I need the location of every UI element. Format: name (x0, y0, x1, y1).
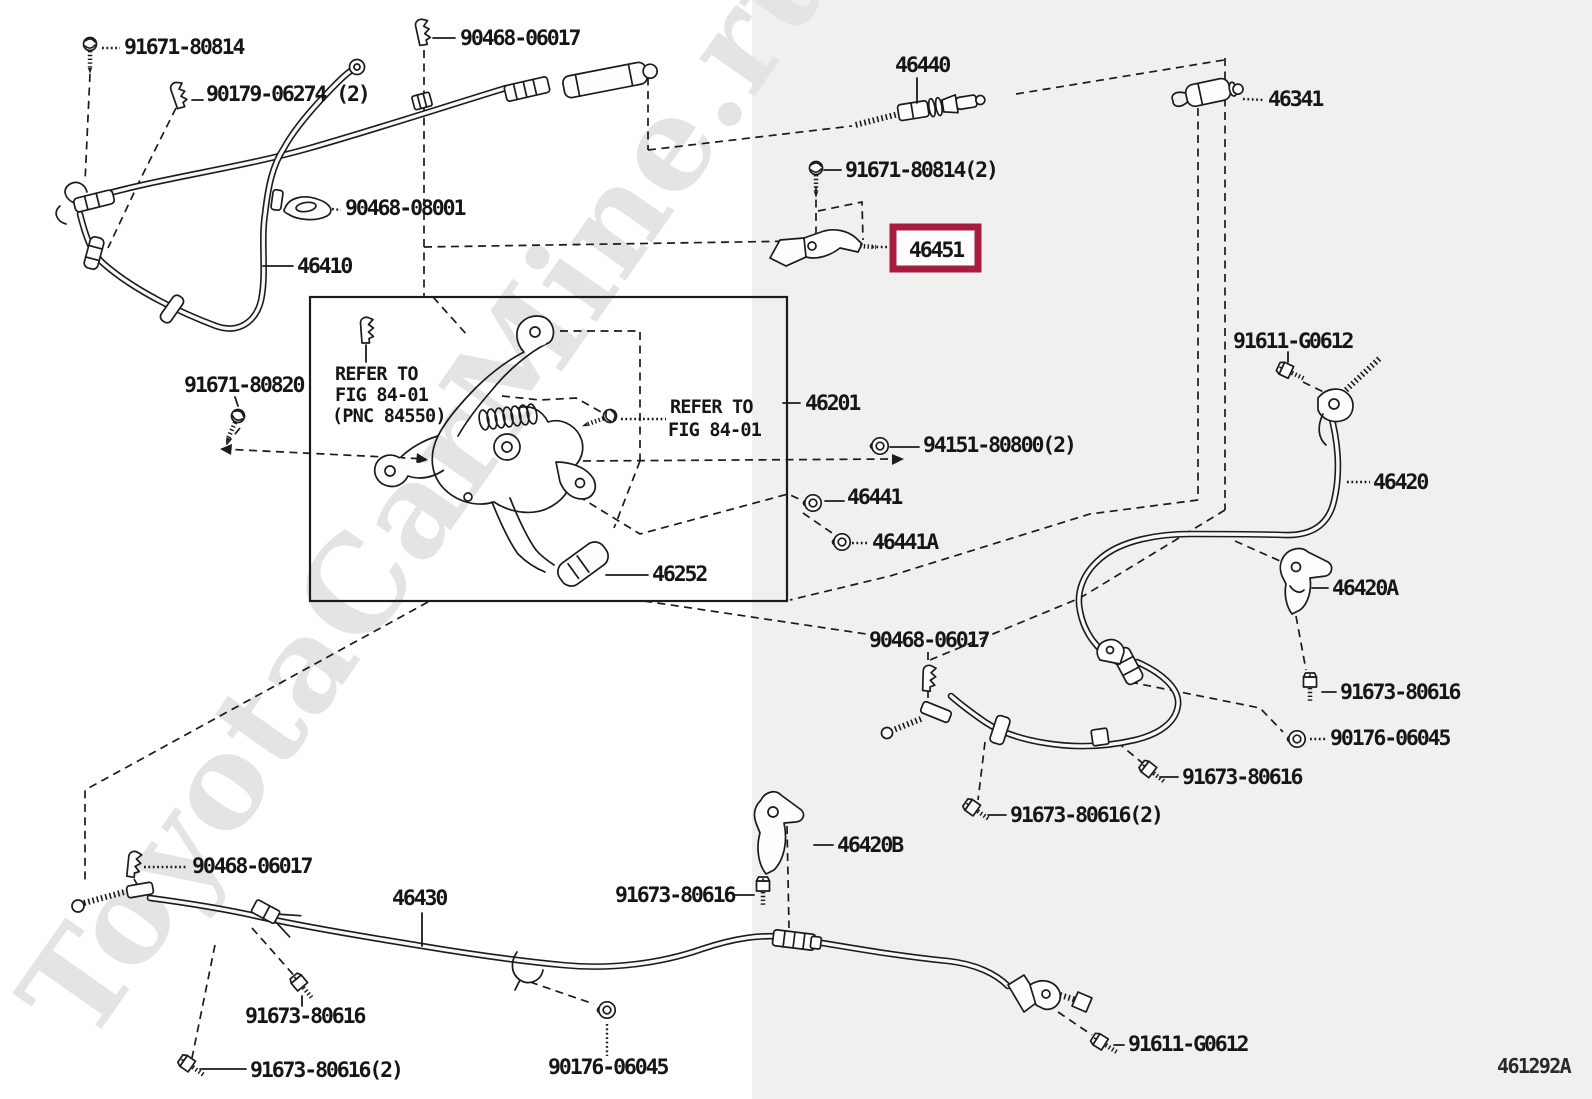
parts-diagram: ToyotaCarMine.ru (0, 0, 1592, 1099)
part-label-91673-80616-a[interactable]: 91673-80616 (1340, 680, 1460, 705)
refer-note-right-line2: FIG 84-01 (668, 420, 762, 441)
part-label-90468-06017-top[interactable]: 90468-06017 (460, 26, 580, 51)
part-label-90176-06045-bottom[interactable]: 90176-06045 (548, 1055, 668, 1080)
highlighted-part-46451[interactable]: 46451 (893, 227, 978, 269)
part-label-90179-06274[interactable]: 90179-06274 (2) (206, 82, 369, 107)
part-label-91673-80616-b[interactable]: 91673-80616 (1182, 765, 1302, 790)
part-label-91673-80616-2-b[interactable]: 91673-80616(2) (250, 1058, 402, 1083)
part-label-91673-80616-d[interactable]: 91673-80616 (245, 1004, 365, 1029)
part-label-91671-80814[interactable]: 91671-80814 (124, 35, 244, 60)
refer-note-left-line3: (PNC 84550) (332, 406, 446, 427)
part-label-94151-80800[interactable]: 94151-80800(2) (923, 433, 1075, 458)
clevis (1318, 389, 1353, 421)
part-label-91673-80616-2-a[interactable]: 91673-80616(2) (1010, 803, 1162, 828)
part-label-91671-80814-2[interactable]: 91671-80814(2) (845, 158, 997, 183)
part-label-91611-G0612-bottom[interactable]: 91611-G0612 (1128, 1032, 1248, 1057)
part-label-46341[interactable]: 46341 (1268, 87, 1323, 112)
cable-eye-end (350, 60, 365, 75)
part-label-90468-08001[interactable]: 90468-08001 (345, 196, 465, 221)
part-label-91673-80616-c[interactable]: 91673-80616 (615, 883, 735, 908)
part-label-46441A[interactable]: 46441A (872, 530, 939, 555)
part-label-46441[interactable]: 46441 (847, 485, 902, 510)
part-label-91611-G0612-top[interactable]: 91611-G0612 (1233, 329, 1353, 354)
part-label-46440[interactable]: 46440 (895, 53, 950, 78)
part-label-46410[interactable]: 46410 (297, 254, 352, 279)
refer-note-left-line2: FIG 84-01 (335, 385, 429, 406)
part-label-46430[interactable]: 46430 (392, 886, 447, 911)
nut-icon (804, 495, 822, 511)
nut-icon (833, 534, 851, 550)
part-label-91671-80820[interactable]: 91671-80820 (184, 373, 304, 398)
part-label-46420[interactable]: 46420 (1373, 470, 1428, 495)
part-label-90176-06045-right[interactable]: 90176-06045 (1330, 726, 1450, 751)
nut-icon (598, 1002, 616, 1018)
refer-note-left-line1: REFER TO (335, 364, 418, 385)
part-label-46420A[interactable]: 46420A (1332, 576, 1399, 601)
part-label-90468-06017-mid[interactable]: 90468-06017 (869, 628, 989, 653)
part-label-46451: 46451 (909, 238, 964, 263)
part-label-46252[interactable]: 46252 (652, 562, 707, 587)
part-label-90468-06017-bottom[interactable]: 90468-06017 (192, 854, 312, 879)
clamp-plate (1097, 640, 1124, 664)
nut-icon (1288, 731, 1306, 747)
part-label-46201[interactable]: 46201 (805, 391, 860, 416)
nut-icon (871, 438, 889, 454)
part-label-46420B[interactable]: 46420B (837, 833, 904, 858)
cable-band (1091, 728, 1109, 746)
diagram-code: 461292A (1497, 1054, 1572, 1078)
refer-note-right-line1: REFER TO (670, 397, 753, 418)
